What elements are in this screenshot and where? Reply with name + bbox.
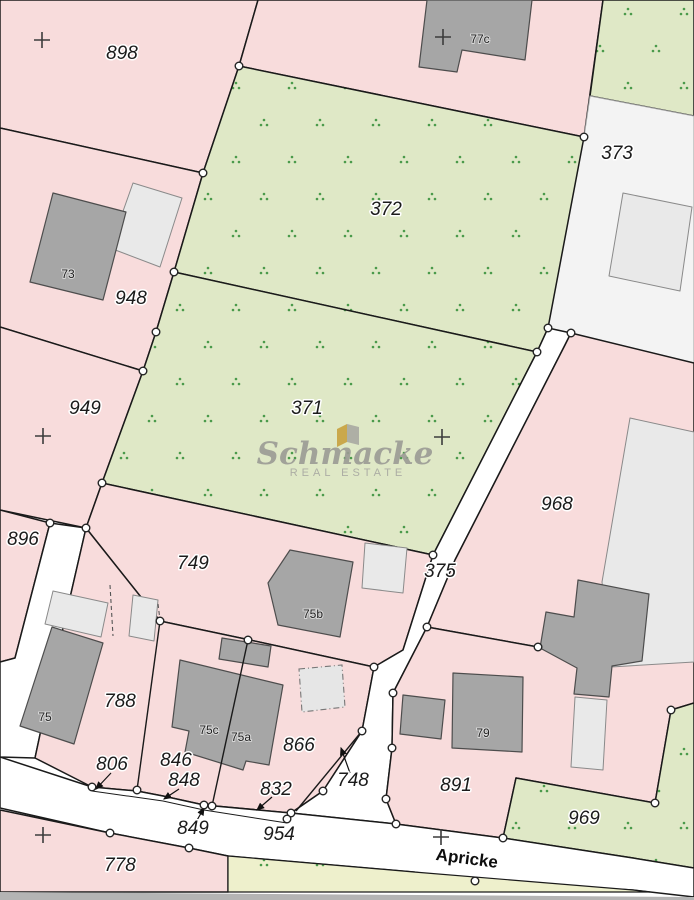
building-79-annex [571, 697, 607, 770]
building-79-west [400, 695, 445, 739]
parcel-label-373: 373 [601, 143, 633, 164]
building-373 [609, 193, 692, 291]
parcel-label-375: 375 [424, 561, 456, 582]
parcel-label-849: 849 [177, 818, 209, 839]
parcel-label-832: 832 [260, 779, 292, 800]
parcel-label-866: 866 [283, 735, 315, 756]
building-label-75: 75 [38, 710, 52, 724]
parcel-label-948: 948 [115, 288, 147, 309]
parcel-label-954: 954 [263, 824, 295, 845]
building-label-75b: 75b [303, 607, 323, 621]
cadastral-map: Schmacke REAL ESTATE 898 373 372 948 949… [0, 0, 694, 900]
parcel-label-778: 778 [104, 855, 136, 876]
parcel-label-891: 891 [440, 775, 472, 796]
building-label-75a: 75a [231, 730, 251, 744]
parcel-label-949: 949 [69, 398, 101, 419]
building-light-small [129, 595, 158, 641]
map-canvas: Schmacke REAL ESTATE 898 373 372 948 949… [0, 0, 694, 900]
parcel-label-969: 969 [568, 808, 600, 829]
building-75b-annex [362, 543, 407, 593]
parcel-label-748: 748 [337, 770, 369, 791]
building-label-73: 73 [61, 267, 75, 281]
building-79 [452, 673, 523, 752]
parcel-label-898: 898 [106, 43, 138, 64]
parcel-label-749: 749 [177, 553, 209, 574]
building-planned-dashed [299, 665, 345, 712]
parcel-label-372: 372 [370, 199, 402, 220]
building-label-77c: 77c [470, 32, 489, 46]
building-75b [268, 550, 353, 637]
parcel-label-968: 968 [541, 494, 573, 515]
parcel-label-788: 788 [104, 691, 136, 712]
building-label-79: 79 [476, 726, 490, 740]
parcel-label-896: 896 [7, 529, 39, 550]
building-label-75c: 75c [199, 723, 218, 737]
parcel-label-806: 806 [96, 754, 128, 775]
watermark-tagline: REAL ESTATE [290, 467, 407, 479]
parcel-label-371: 371 [291, 398, 323, 419]
parcel-label-846: 846 [160, 750, 192, 771]
parcel-label-848: 848 [168, 770, 200, 791]
